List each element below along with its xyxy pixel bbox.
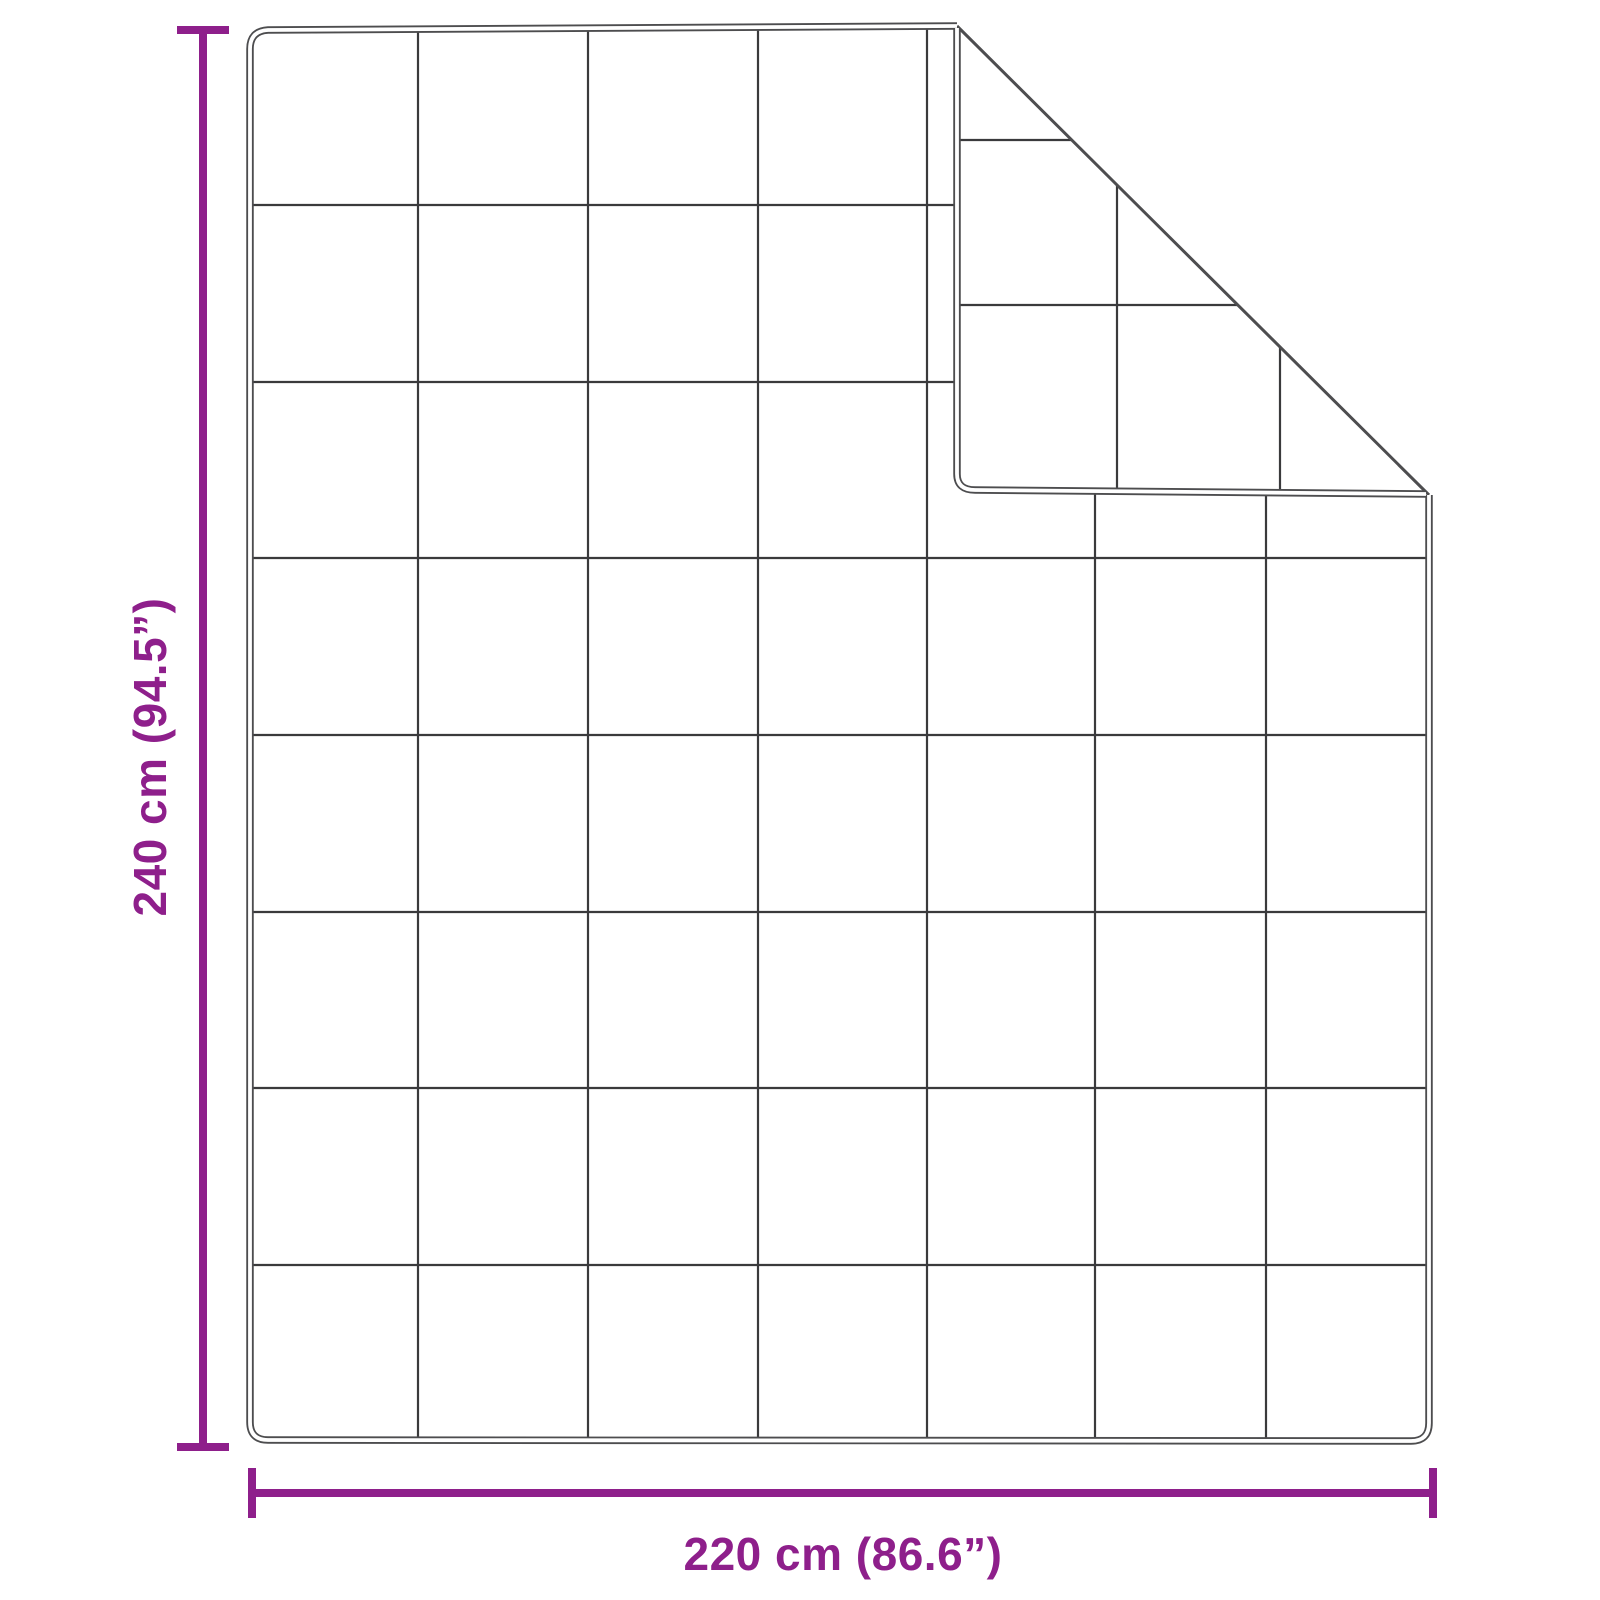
blanket-front (250, 26, 1429, 1441)
height-dimension-label: 240 cm (94.5”) (123, 598, 177, 917)
blanket-illustration (0, 0, 1600, 1600)
height-dimension-line (177, 30, 229, 1447)
dimension-diagram: 240 cm (94.5”) 220 cm (86.6”) (0, 0, 1600, 1600)
width-dimension-label: 220 cm (86.6”) (684, 1527, 1003, 1581)
width-dimension-line (252, 1468, 1433, 1518)
